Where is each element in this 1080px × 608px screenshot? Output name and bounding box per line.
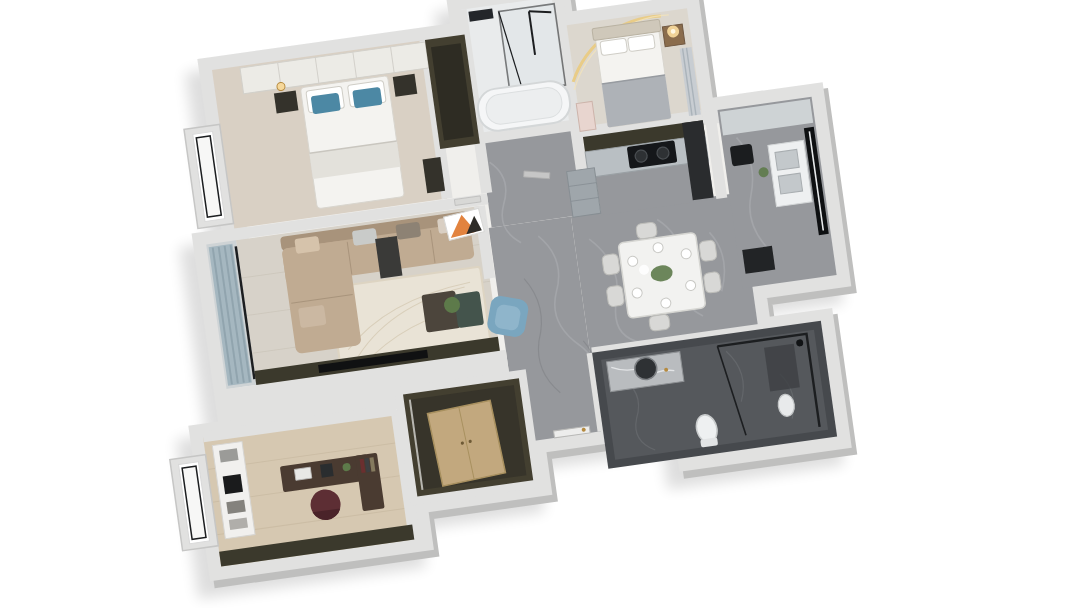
shelf-box [219,448,238,462]
pink-shelf [576,101,596,131]
desk-monitor [320,463,334,478]
shelf-tv [223,474,243,494]
shower-glass [499,4,566,93]
pillow [600,38,628,55]
gray-cabinet-unit [567,168,601,217]
shelf-box [226,500,245,514]
master-bed [300,76,404,209]
blue-armchair [486,294,530,338]
sink-basin [778,173,802,194]
desk-books [360,457,376,473]
coffee-table [421,287,484,333]
armchair-seat [494,304,522,332]
pillow [628,34,656,51]
hall-door [524,171,550,179]
laptop [294,467,311,480]
shower-tray [764,344,800,392]
floorplan-render [0,0,1080,608]
dark-floor-item [742,246,775,274]
nightstand-right [393,74,418,97]
nightstand-left [274,91,299,114]
gold-lamp [276,82,285,91]
sink-basin [775,149,799,170]
closet-room [399,374,538,501]
small-appliance [730,144,755,167]
floorplan-svg [0,0,1080,608]
chaise-pillow [298,305,327,328]
